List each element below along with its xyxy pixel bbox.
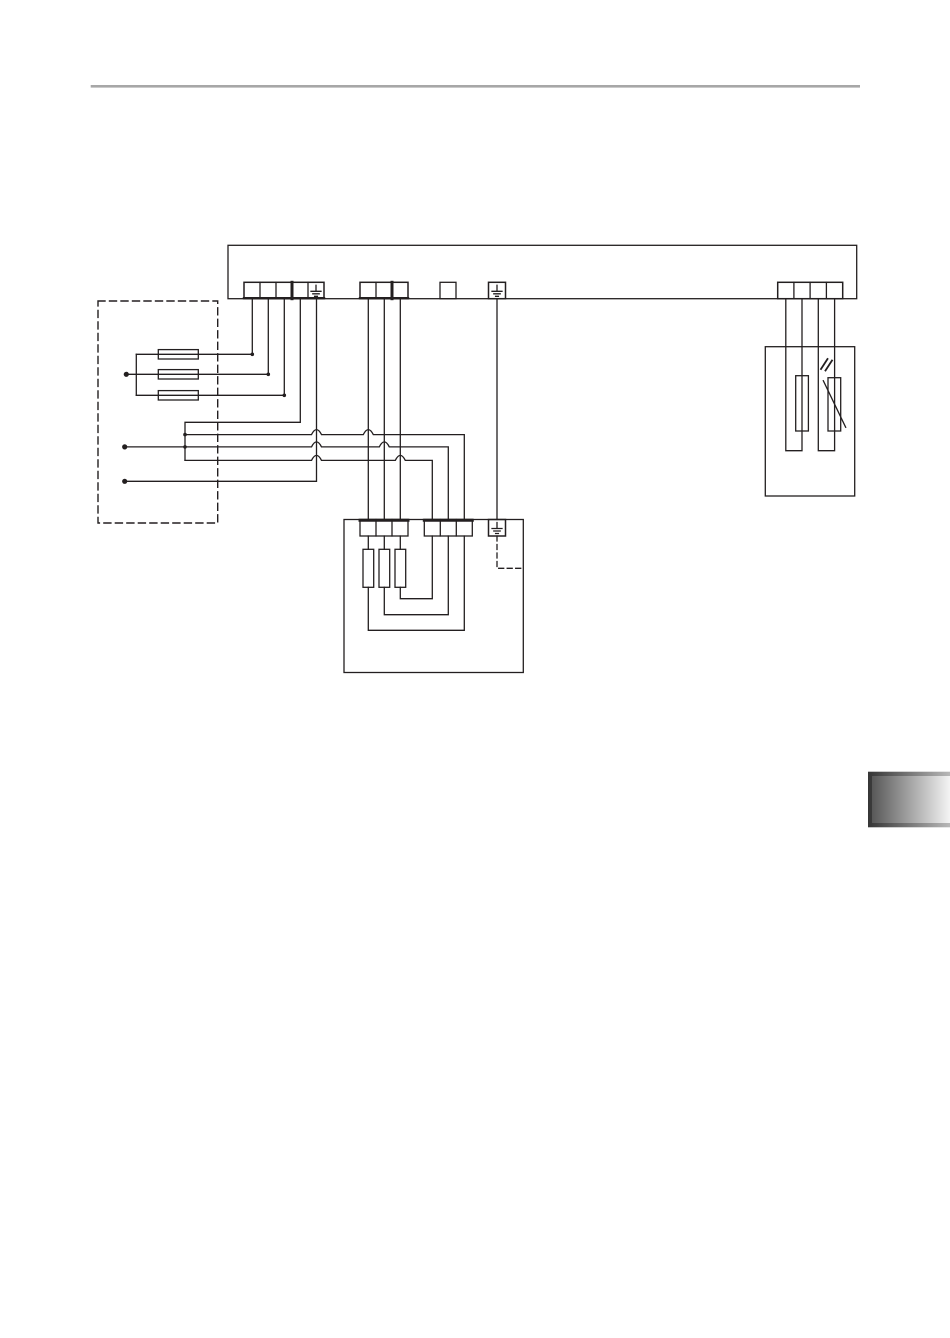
fuse-group [126,299,284,400]
fuse-2-wire [126,299,268,374]
terminal-earth-top [489,282,506,298]
wiring-diagram-canvas [0,0,950,1338]
earth-icon [492,285,502,296]
junction-dot [251,353,255,357]
header-rule [91,85,860,88]
terminal-block-mains [244,282,324,298]
temperature-sensor-box [765,299,854,496]
meter-strip-1 [360,520,408,537]
junction-dot [183,445,187,449]
earth-dashed-link [497,536,523,568]
supply-endpoint-dot [122,444,127,449]
supply-endpoint-dot [124,372,129,377]
wire-earth-left [125,299,317,481]
terminal-single [440,282,456,298]
current-transformer-3 [395,549,406,587]
terminal-block-ct [360,282,408,298]
meter-earth-terminal [489,520,506,537]
fuse-1-wire [136,299,252,354]
junction-dot [183,433,187,437]
thermistor-marks [821,359,832,371]
junction-dots [122,353,286,484]
dashed-supply-enclosure [98,301,218,523]
earth-icon [311,285,321,296]
wire-sense-1 [185,430,464,520]
current-transformer-1 [363,549,374,587]
sensor-1-wires [786,299,802,451]
ct-stub-wires [368,536,400,549]
page-gradient-tab [868,772,950,828]
wire-sense-3 [185,455,432,519]
schematic [98,245,857,672]
meter-strip-2 [424,520,472,537]
fuse-3-wire [136,299,284,395]
current-transformer-2 [379,549,390,587]
document-page [0,0,950,1338]
junction-dot [283,394,287,398]
ct-return-wire-3 [368,536,464,630]
sensor-2-wires [818,299,834,451]
meter-box-outline [344,520,523,673]
ct-return-wire-2 [384,536,448,615]
main-unit-outline [228,245,857,298]
meter-box [344,520,523,673]
supply-endpoint-dot [122,479,127,484]
earth-icon [492,523,502,534]
wire-neutral [185,299,300,460]
terminal-block-sensor [778,282,843,298]
main-unit-box [228,245,857,298]
sense-wiring [125,299,465,520]
junction-dot [267,373,271,377]
page-gradient-tab-face [872,776,950,823]
